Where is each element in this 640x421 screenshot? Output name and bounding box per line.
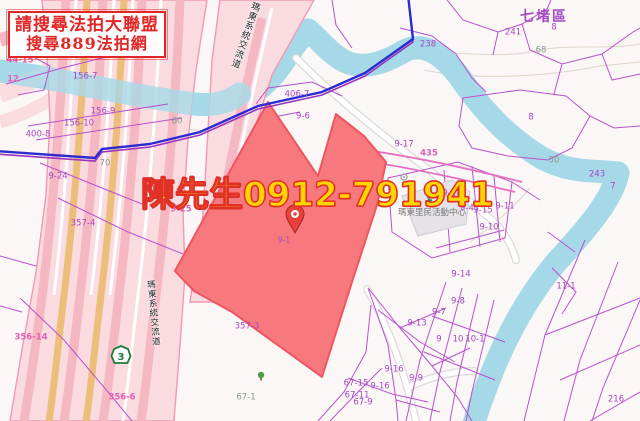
parcel-label: 241 [505,29,521,38]
parcel-label: 356-6 [108,394,135,403]
parcel-label: 9-16 [370,383,389,392]
parcel-label: 9-17 [394,141,413,150]
parcel-label: 67-9 [353,399,372,408]
pin-parcel-label: 9-1 [278,236,290,245]
map-canvas[interactable]: 3 44-1512156-7156-9156-10400-870609-249-… [0,0,640,421]
parcel-label: 9 [436,336,441,345]
parcel-label: 11-1 [556,283,575,292]
parcel-label: 9-6 [296,113,310,122]
promo-line2: 搜尋889法拍網 [10,35,164,53]
promo-line1: 請搜尋法拍大聯盟 [10,15,164,35]
parcel-label: 156-10 [64,120,94,129]
shield-number: 3 [118,352,125,363]
parcel-label: 67-15 [344,380,369,389]
parcel-label: 9-14 [451,271,470,280]
parcel-label: 156-9 [91,108,116,117]
parcel-label: 243 [589,171,605,180]
parcel-label: 68 [536,47,547,56]
parcel-label: 357-4 [71,220,96,229]
contact-watermark: 陳先生0912-791941 [141,167,494,216]
parcel-label: 9-11 [495,203,514,212]
highway-shield-3: 3 [112,346,131,363]
parcel-label: 356-14 [14,334,47,343]
parcel-label: 216 [608,396,624,405]
parcel-label: 10 [453,336,464,345]
parcel-label: 10-1 [465,336,484,345]
parcel-label: 435 [420,150,438,159]
parcel-label: 9-24 [48,173,67,182]
parcel-label: 9-16 [384,366,403,375]
parcel-label: 60 [172,118,183,127]
parcel-label: 70 [100,160,111,169]
parcel-label: 9-13 [407,320,426,329]
parcel-label: 400-8 [26,131,51,140]
parcel-label: 238 [420,41,436,50]
parcel-label: 50 [549,157,560,166]
parcel-label: 67-1 [236,394,255,403]
parcel-label: 7 [610,183,615,192]
parcel-label: 9-9 [409,375,423,384]
parcel-label: 9-7 [432,309,446,318]
parcel-label: 357-3 [235,323,260,332]
parcel-label: 8 [528,114,533,123]
parcel-label: 9-8 [451,298,465,307]
parcel-label: 156-7 [73,73,98,82]
parcel-label: 9-10 [479,224,498,233]
promo-overlay: 請搜尋法拍大聯盟 搜尋889法拍網 [8,11,166,58]
district-label: 七堵區 [520,6,568,26]
parcel-label: 406-7 [285,91,310,100]
parcel-label: 12 [7,76,19,85]
